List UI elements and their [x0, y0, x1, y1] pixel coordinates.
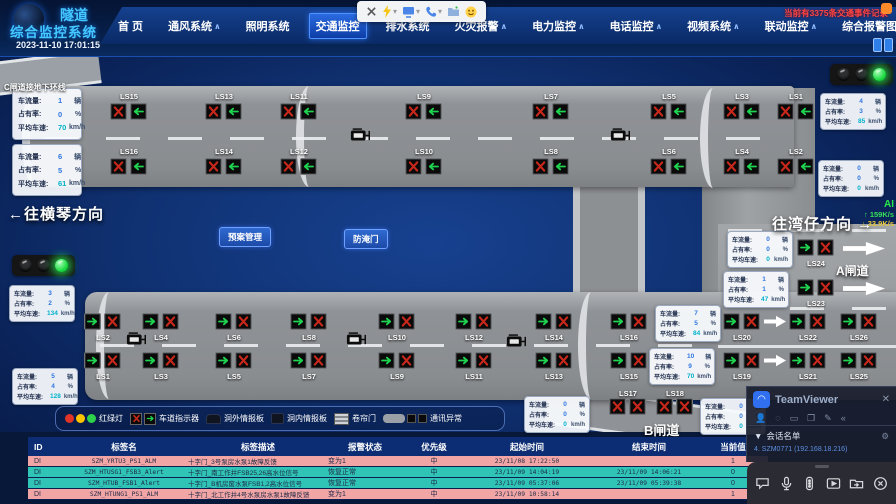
lane-sign-LS25[interactable]	[840, 352, 877, 369]
green-arrow-icon	[670, 158, 687, 175]
window-switcher-icon[interactable]	[873, 38, 893, 52]
green-arrow-icon	[130, 103, 147, 120]
traffic-event-alert: 当前有3375条交通事件记录	[784, 7, 888, 19]
lane-sign-LS8[interactable]	[532, 158, 569, 175]
white-arrow-icon	[764, 315, 786, 328]
panel-row-speed: 平均车速:0km/h	[732, 255, 788, 264]
column-header: 优先级	[402, 441, 466, 453]
lane-sign-LS3[interactable]	[142, 352, 179, 369]
red-x-icon	[650, 103, 667, 120]
lane-sign-LS7[interactable]	[532, 103, 569, 120]
column-header: 结束时间	[588, 441, 710, 453]
lane-sign-label: LS17	[606, 389, 650, 398]
drag-handle[interactable]	[815, 465, 829, 468]
lane-divider	[718, 345, 896, 348]
green-arrow-icon	[378, 352, 395, 369]
traffic-panel-a-gate-lower: 车流量:1辆占有率:1%平均车速:47km/h	[723, 271, 789, 308]
indoor-board-icon	[271, 413, 284, 424]
lane-sign-LS26[interactable]	[840, 313, 877, 330]
red-x-icon	[162, 352, 179, 369]
participants-icon: 👤	[755, 413, 766, 424]
legend-item: 红绿灯	[65, 413, 123, 424]
file-transfer-icon[interactable]	[849, 476, 864, 496]
cell: SZM_HTUNG1_PS1_ALM	[60, 491, 188, 498]
white-arrow-icon	[843, 241, 885, 256]
red-x-icon	[162, 313, 179, 330]
lane-sign-label: LS22	[786, 333, 830, 342]
lane-sign-label: LS14	[202, 147, 246, 156]
cctv-camera-icon[interactable]	[126, 332, 148, 352]
traffic-light[interactable]	[12, 255, 75, 276]
traffic-panel-b-gate-left: 车流量:0辆占有率:0%平均车速:0km/h	[524, 396, 590, 433]
panel-row-occupancy: 占有率:0%	[529, 410, 585, 419]
net-monitor-title: AI	[862, 199, 894, 210]
panel-row-speed: 平均车速:84km/h	[660, 329, 716, 338]
nav-item[interactable]: 首 页	[112, 14, 149, 38]
lane-sign-LS16[interactable]	[110, 158, 147, 175]
traffic-panel-main-upper: 车流量:7辆占有率:5%平均车速:84km/h	[655, 305, 721, 342]
gear-icon[interactable]: ⚙	[881, 431, 889, 442]
lane-sign-LS19[interactable]	[723, 352, 760, 369]
lane-sign-label: LS12	[277, 147, 321, 156]
cell: DI	[28, 469, 60, 476]
cctv-camera-icon[interactable]	[506, 334, 528, 354]
cctv-camera-icon[interactable]	[350, 128, 372, 148]
flood-door-button[interactable]: 防淹门	[344, 229, 388, 249]
cell: 十字门_3号泵房水泵1故障反馈	[188, 456, 328, 466]
traffic-light-icon	[65, 414, 96, 423]
green-arrow-icon	[225, 158, 242, 175]
panel-row-speed: 平均车速:128km/h	[17, 392, 73, 401]
cross-passage	[573, 187, 645, 293]
lane-sign-LS18[interactable]	[656, 398, 693, 415]
folder-add-icon[interactable]	[447, 6, 460, 17]
lane-sign-LS11[interactable]	[280, 103, 317, 120]
red-x-icon	[110, 103, 127, 120]
lane-sign-LS12[interactable]	[280, 158, 317, 175]
alarm-row[interactable]: DISZM_HTUSG1_FSB3_Alert十字门_南工作井FSB25,26高…	[28, 467, 768, 478]
lane-sign-label: LS15	[607, 372, 651, 381]
white-arrow-icon	[843, 281, 885, 296]
red-x-icon	[743, 313, 760, 330]
green-arrow-icon	[552, 103, 569, 120]
lane-sign-LS22[interactable]	[789, 313, 826, 330]
cell: 23/11/09 05:37:06	[466, 480, 588, 487]
panel-row-speed: 平均车速:61km/h	[18, 179, 76, 189]
lane-sign-label: LS1	[81, 372, 125, 381]
lane-sign-LS17[interactable]	[609, 398, 646, 415]
lane-sign-LS10[interactable]	[378, 313, 415, 330]
lane-sign-LS8[interactable]	[290, 313, 327, 330]
cell: 十字门_B机房废水泵FSB1,2高水位信号	[188, 478, 328, 488]
nav-item[interactable]: 通风系统∧	[162, 14, 227, 38]
cell: 恢复正常	[328, 467, 402, 477]
lane-sign-label: LS19	[720, 372, 764, 381]
session-list-menu[interactable]: ▼ 会话名单 ⚙	[747, 425, 896, 446]
notification-badge-icon[interactable]	[881, 3, 892, 14]
traffic-light[interactable]	[830, 64, 893, 85]
green-arrow-icon	[789, 352, 806, 369]
panel-row-occupancy: 占有率:4%	[17, 382, 73, 391]
green-arrow-icon	[142, 313, 159, 330]
red-x-icon	[817, 279, 834, 296]
panel-row-flow: 车流量:3辆	[14, 289, 70, 298]
lane-sign-label: LS16	[107, 147, 151, 156]
lane-sign-LS13[interactable]	[535, 352, 572, 369]
red-x-icon	[532, 103, 549, 120]
lane-sign-LS23[interactable]	[797, 279, 834, 296]
cell: DI	[28, 480, 60, 487]
green-arrow-icon	[789, 313, 806, 330]
lane-sign-LS20[interactable]	[723, 313, 760, 330]
draw-icon: ✎	[824, 413, 832, 424]
net-up-speed: ↑ 159K/s	[862, 210, 894, 219]
mic-icon[interactable]	[779, 476, 794, 496]
lane-sign-label: LS1	[774, 92, 818, 101]
red-x-icon	[630, 352, 647, 369]
off-light-icon	[19, 259, 32, 272]
lane-sign-LS15[interactable]	[610, 352, 647, 369]
main-nav: 首 页通风系统∧照明系统交通监控排水系统火灾报警∧电力监控∧电话监控∧视频系统∧…	[112, 13, 896, 39]
lane-sign-LS10[interactable]	[405, 158, 442, 175]
chevron-down-icon: ▼	[754, 431, 762, 441]
column-header: 起始时间	[466, 441, 588, 453]
cell: 中	[402, 489, 466, 499]
panel-row-occupancy: 占有率:5%	[660, 319, 716, 328]
off-light-icon	[837, 68, 850, 81]
lane-sign-LS11[interactable]	[455, 352, 492, 369]
green-arrow-icon	[743, 158, 760, 175]
cell: 中	[402, 478, 466, 488]
nav-item-label: 照明系统	[246, 18, 290, 34]
red-x-icon	[743, 352, 760, 369]
traffic-panel-main-lower: 车流量:10辆占有率:9%平均车速:70km/h	[649, 348, 715, 385]
panel-row-occupancy: 占有率:5%	[18, 165, 76, 175]
red-x-icon	[110, 158, 127, 175]
red-x-icon	[860, 313, 877, 330]
green-arrow-icon	[290, 313, 307, 330]
panel-row-occupancy: 占有率:3%	[825, 107, 881, 116]
red-x-icon	[860, 352, 877, 369]
lane-sign-label: LS26	[837, 333, 881, 342]
teamviewer-action-icons[interactable]: 👤◌▭❐✎«	[747, 412, 896, 425]
nav-item-label: 综合报警图表	[842, 18, 896, 34]
lightning-icon[interactable]: ▾	[382, 5, 397, 18]
green-arrow-icon	[797, 239, 814, 256]
lane-sign-LS9[interactable]	[378, 352, 415, 369]
red-x-icon	[656, 398, 673, 415]
net-monitor: AI ↑ 159K/s ↓ 33.9K/s	[862, 199, 894, 228]
red-x-icon	[532, 158, 549, 175]
panel-row-occupancy: 占有率:0%	[18, 109, 76, 119]
lane-sign-label: LS8	[529, 147, 573, 156]
lane-sign-label: LS23	[794, 299, 838, 308]
red-x-icon	[398, 352, 415, 369]
green-arrow-icon	[130, 158, 147, 175]
session-entry[interactable]: 4. SZM0771 (192.168.18.216)	[747, 446, 896, 453]
panel-row-speed: 平均车速:85km/h	[825, 117, 881, 126]
green-arrow-icon	[670, 103, 687, 120]
lane-divider	[100, 344, 712, 347]
panel-row-speed: 平均车速:70km/h	[18, 123, 76, 133]
legend-label: 红绿灯	[99, 413, 123, 424]
nav-item-label: 通风系统	[168, 18, 212, 34]
cctv-camera-icon[interactable]	[346, 332, 368, 352]
lane-sign-label: LS18	[653, 389, 697, 398]
traffic-panel-c-gate-lower: 车流量:6辆占有率:5%平均车速:61km/h	[12, 144, 82, 196]
smiley-icon[interactable]	[465, 6, 477, 18]
panel-row-speed: 平均车速:0km/h	[823, 184, 879, 193]
alarm-table-header: ID标签名标签描述报警状态优先级起始时间结束时间当前值	[28, 437, 768, 456]
chevron-up-icon: ∧	[501, 22, 508, 31]
lane-sign-label: LS10	[402, 147, 446, 156]
lane-sign-label: LS14	[532, 333, 576, 342]
green-arrow-icon	[300, 103, 317, 120]
lane-sign-label: LS4	[720, 147, 764, 156]
cell: 变为1	[328, 456, 402, 466]
cell: 恢复正常	[328, 478, 402, 488]
cell: SZM_HTUSG1_FSB3_Alert	[60, 469, 188, 476]
lane-sign-label: LS20	[720, 333, 764, 342]
lane-sign-LS4[interactable]	[142, 313, 179, 330]
audio-icon: ◌	[775, 413, 780, 424]
green-arrow-icon	[225, 103, 242, 120]
phone-icon[interactable]: ▾	[425, 6, 442, 18]
cell: 十字门_北工作井4号水泵房水泵1故障反馈	[188, 489, 328, 499]
legend-label: 通讯异常	[430, 413, 462, 424]
legend-bar: 红绿灯车道指示器洞外情报板洞内情报板卷帘门通讯异常	[55, 406, 505, 431]
green-arrow-icon	[84, 313, 101, 330]
cell: 中	[402, 467, 466, 477]
lane-sign-LS9[interactable]	[405, 103, 442, 120]
close-icon[interactable]: ✕	[882, 394, 890, 405]
cell: 23/11/09 14:04:19	[466, 469, 588, 476]
green-arrow-icon	[797, 103, 814, 120]
lane-sign-LS14[interactable]	[205, 158, 242, 175]
lane-sign-LS24[interactable]	[797, 239, 834, 256]
lane-sign-label: LS25	[837, 372, 881, 381]
green-arrow-icon	[535, 313, 552, 330]
green-arrow-icon	[425, 103, 442, 120]
white-arrow-icon	[764, 354, 786, 367]
nav-item-label: 交通监控	[316, 18, 360, 34]
cell: 十字门_南工作井FSB25,26高水位信号	[188, 467, 328, 477]
panel-row-flow: 车流量:0辆	[732, 235, 788, 244]
panel-row-flow: 车流量:1辆	[18, 96, 76, 106]
app-root: 隧道 综合监控系统 2023-11-10 17:01:15 首 页通风系统∧照明…	[0, 0, 896, 504]
monitor-icon[interactable]: ▾	[402, 6, 420, 18]
lane-sign-label: LS21	[786, 372, 830, 381]
lane-sign-LS3[interactable]	[723, 103, 760, 120]
panel-row-occupancy: 占有率:2%	[14, 299, 70, 308]
legend-item: 卷帘门	[334, 413, 376, 425]
close-icon[interactable]	[366, 6, 377, 17]
green-arrow-icon	[290, 352, 307, 369]
remote-control-icon[interactable]	[802, 476, 817, 496]
chevron-up-icon: ∧	[656, 22, 663, 31]
nav-item-label: 视频系统	[687, 18, 731, 34]
lane-sign-LS1[interactable]	[777, 103, 814, 120]
column-header: 报警状态	[328, 441, 402, 453]
a-gate-label: A闸道	[836, 262, 869, 279]
cell: SZM_YRTU3_PS1_ALM	[60, 458, 188, 465]
lane-sign-label: LS12	[452, 333, 496, 342]
cell: 23/11/09 14:06:21	[588, 469, 710, 476]
green-arrow-icon	[840, 313, 857, 330]
lane-sign-label: LS15	[107, 92, 151, 101]
panel-row-occupancy: 占有率:0%	[732, 245, 788, 254]
panel-row-flow: 车流量:10辆	[654, 352, 710, 361]
green-arrow-icon	[535, 352, 552, 369]
alarm-row[interactable]: DISZM_YRTU3_PS1_ALM十字门_3号泵房水泵1故障反馈变为1中23…	[28, 456, 768, 467]
nav-item[interactable]: 照明系统	[240, 14, 296, 38]
green-arrow-icon	[743, 103, 760, 120]
legend-label: 洞内情报板	[287, 413, 327, 424]
lane-sign-label: LS9	[375, 372, 419, 381]
red-x-icon	[817, 239, 834, 256]
red-x-icon	[555, 352, 572, 369]
lane-sign-label: LS5	[647, 92, 691, 101]
lane-sign-label: LS24	[794, 259, 838, 268]
chevron-up-icon: ∧	[578, 22, 585, 31]
nav-item-label: 联动监控	[765, 18, 809, 34]
chat-icon[interactable]	[755, 476, 770, 496]
lane-sign-LS12[interactable]	[455, 313, 492, 330]
red-x-icon	[475, 313, 492, 330]
green-arrow-icon	[723, 313, 740, 330]
traffic-panel-west-upper: 车流量:3辆占有率:2%平均车速:134km/h	[9, 285, 75, 322]
lane-sign-LS2[interactable]	[777, 158, 814, 175]
green-arrow-icon	[723, 352, 740, 369]
green-arrow-icon	[215, 313, 232, 330]
alarm-row[interactable]: DISZM_HTUNG1_PS1_ALM十字门_北工作井4号水泵房水泵1故障反馈…	[28, 489, 768, 500]
lane-sign-label: LS7	[287, 372, 331, 381]
lane-sign-LS13[interactable]	[205, 103, 242, 120]
lane-sign-LS14[interactable]	[535, 313, 572, 330]
lane-sign-LS4[interactable]	[723, 158, 760, 175]
cctv-camera-icon[interactable]	[610, 128, 632, 148]
cell: SZM_HTUB_FSB1_Alert	[60, 480, 188, 487]
red-x-icon	[310, 352, 327, 369]
green-arrow-icon	[610, 352, 627, 369]
lane-sign-label: LS10	[375, 333, 419, 342]
traffic-panel-a-gate-upper: 车流量:0辆占有率:0%平均车速:0km/h	[727, 231, 793, 268]
red-x-icon	[723, 158, 740, 175]
direction-east-label: 往湾仔方向 →	[772, 213, 873, 234]
cell: 变为1	[328, 489, 402, 499]
lane-sign-LS15[interactable]	[110, 103, 147, 120]
plan-management-button[interactable]: 预案管理	[219, 227, 271, 247]
panel-row-occupancy: 占有率:9%	[654, 362, 710, 371]
net-down-speed: ↓ 33.9K/s	[862, 219, 894, 228]
lane-sign-LS5[interactable]	[650, 103, 687, 120]
chevron-up-icon: ∧	[214, 22, 221, 31]
datetime: 2023-11-10 17:01:15	[16, 40, 100, 50]
direction-west-label: ←往横琴方向	[8, 203, 104, 224]
green-arrow-icon	[425, 158, 442, 175]
teamviewer-title: TeamViewer	[775, 394, 877, 406]
alarm-table-body: DISZM_YRTU3_PS1_ALM十字门_3号泵房水泵1故障反馈变为1中23…	[28, 456, 768, 500]
red-x-icon	[205, 103, 222, 120]
lane-sign-LS6[interactable]	[650, 158, 687, 175]
lane-sign-LS21[interactable]	[789, 352, 826, 369]
traffic-panel-east-top: 车流量:4辆占有率:3%平均车速:85km/h	[820, 93, 886, 130]
video-icon[interactable]	[826, 476, 841, 496]
lane-sign-LS2[interactable]	[84, 313, 121, 330]
green-light-icon	[55, 259, 68, 272]
outdoor-board-icon	[206, 414, 221, 424]
lane-sign-LS6[interactable]	[215, 313, 252, 330]
cell: DI	[28, 458, 60, 465]
alarm-row[interactable]: DISZM_HTUB_FSB1_Alert十字门_B机房废水泵FSB1,2高水位…	[28, 478, 768, 489]
legend-label: 车道指示器	[159, 413, 199, 424]
column-header: 标签描述	[188, 441, 328, 453]
green-arrow-icon	[300, 158, 317, 175]
panel-row-flow: 车流量:0辆	[529, 400, 585, 409]
red-x-icon	[630, 313, 647, 330]
lane-sign-LS16[interactable]	[610, 313, 647, 330]
nav-item-label: 电话监控	[610, 18, 654, 34]
panel-row-speed: 平均车速:47km/h	[728, 295, 784, 304]
lane-sign-label: LS13	[532, 372, 576, 381]
red-x-icon	[310, 313, 327, 330]
legend-label: 卷帘门	[352, 413, 376, 424]
green-arrow-icon	[552, 158, 569, 175]
off-light-icon	[37, 259, 50, 272]
red-x-icon	[777, 158, 794, 175]
chevron-up-icon: ∧	[733, 22, 740, 31]
nav-item[interactable]: 电话监控∧	[604, 14, 669, 38]
red-x-icon	[650, 158, 667, 175]
red-x-icon	[104, 352, 121, 369]
panel-row-flow: 车流量:5辆	[17, 372, 73, 381]
panel-row-speed: 平均车速:134km/h	[14, 309, 70, 318]
red-x-icon	[555, 313, 572, 330]
lane-sign-LS5[interactable]	[215, 352, 252, 369]
nav-item-label: 首 页	[118, 18, 143, 34]
red-x-icon	[280, 158, 297, 175]
panel-row-flow: 车流量:0辆	[823, 164, 879, 173]
legend-item: 洞内情报板	[271, 413, 327, 424]
nav-item[interactable]: 电力监控∧	[526, 14, 591, 38]
lane-sign-label: LS3	[720, 92, 764, 101]
lane-sign-label: LS11	[452, 372, 496, 381]
red-x-icon	[809, 313, 826, 330]
green-arrow-icon	[455, 313, 472, 330]
lane-sign-label: LS6	[647, 147, 691, 156]
green-arrow-icon	[455, 352, 472, 369]
column-header: 标签名	[60, 441, 188, 453]
cell: 23/11/08 17:22:50	[466, 458, 588, 465]
lane-sign-LS7[interactable]	[290, 352, 327, 369]
lane-sign-LS1[interactable]	[84, 352, 121, 369]
end-session-icon[interactable]	[873, 476, 888, 496]
app-title-line2: 综合监控系统	[10, 21, 97, 41]
chat-icon: ▭	[790, 413, 799, 424]
legend-item: 洞外情报板	[206, 413, 264, 424]
lane-indicator-icon	[130, 413, 156, 425]
off-light-icon	[855, 68, 868, 81]
nav-item[interactable]: 视频系统∧	[681, 14, 746, 38]
panel-row-speed: 平均车速:70km/h	[654, 372, 710, 381]
cell: 23/11/09 05:39:38	[588, 480, 710, 487]
traffic-panel-c-gate-upper: 车流量:1辆占有率:0%平均车速:70km/h	[12, 88, 82, 140]
red-x-icon	[398, 313, 415, 330]
collapse-icon: «	[841, 413, 846, 424]
red-x-icon	[475, 352, 492, 369]
red-x-icon	[235, 352, 252, 369]
cell: 中	[402, 456, 466, 466]
